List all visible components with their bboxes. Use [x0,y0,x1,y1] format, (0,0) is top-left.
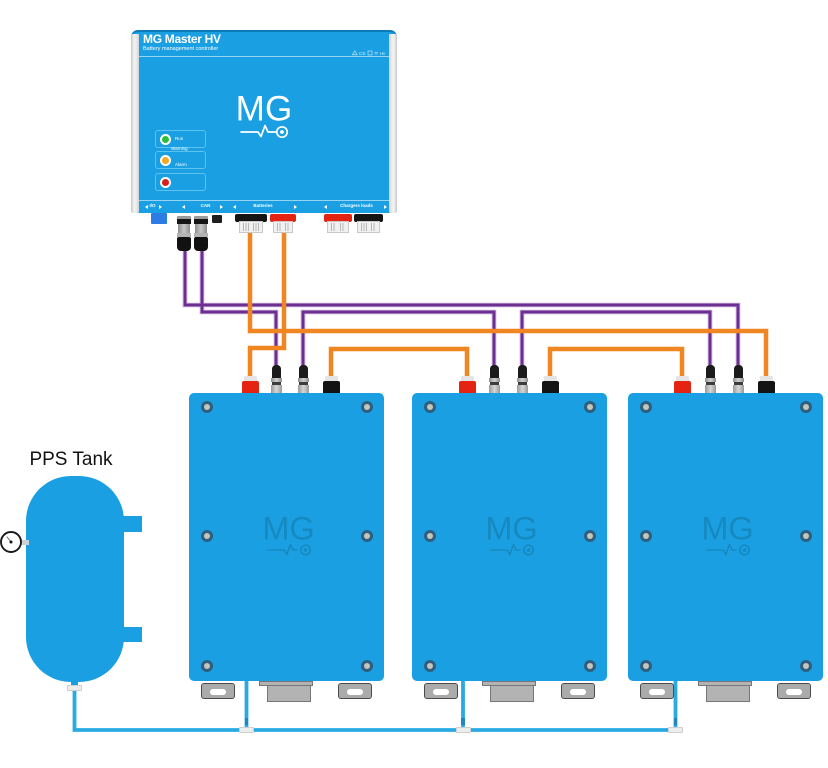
svg-text:MG: MG [485,511,537,547]
svg-text:CE: CE [359,51,366,56]
svg-text:Hv: Hv [380,51,386,56]
svg-text:MG: MG [701,511,753,547]
svg-text:MG: MG [262,511,314,547]
svg-text:MG: MG [236,90,293,129]
